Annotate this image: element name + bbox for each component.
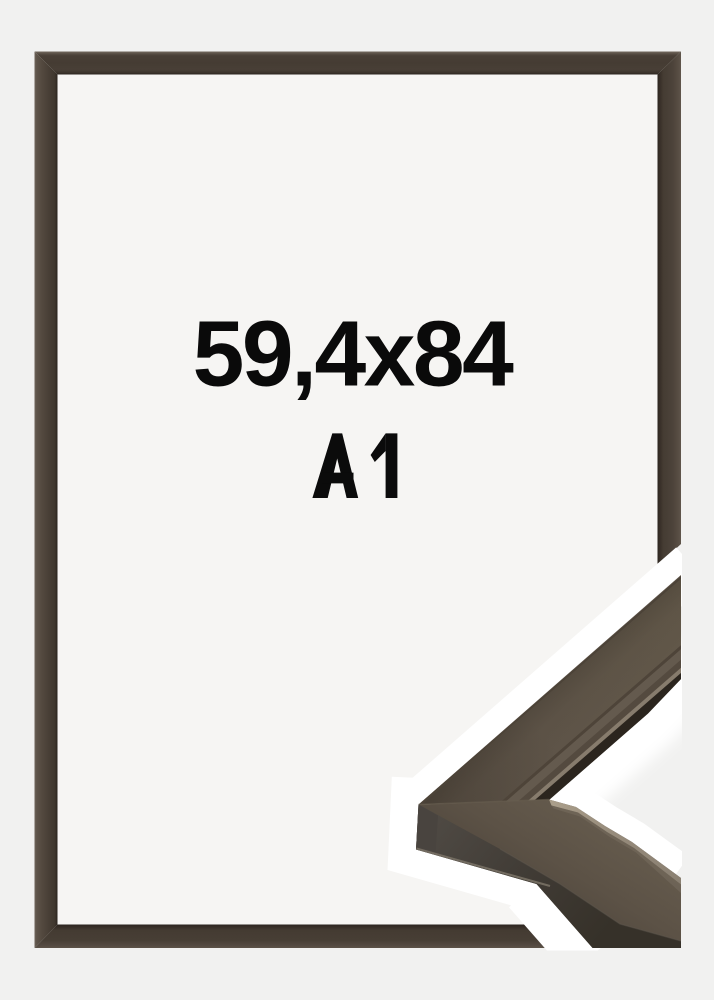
svg-text:59,4x84: 59,4x84 — [193, 302, 514, 406]
